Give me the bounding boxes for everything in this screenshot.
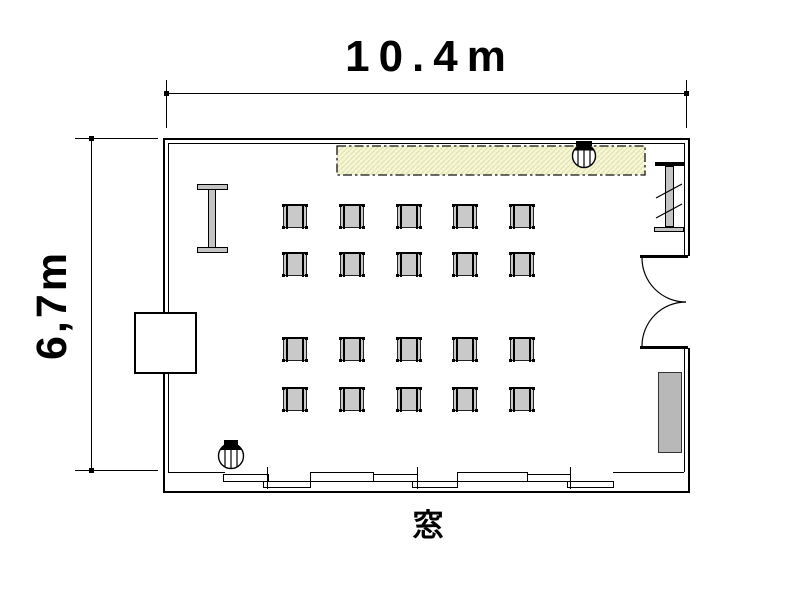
desk-corner-nub [362, 359, 365, 362]
desk [283, 387, 307, 411]
desk-corner-nub [532, 204, 535, 207]
desk [510, 387, 534, 411]
desk [510, 252, 534, 276]
extension-line-right [686, 80, 687, 128]
desk-corner-nub [305, 387, 308, 390]
window-mullion-tick [570, 467, 571, 489]
desk-corner-nub [362, 274, 365, 277]
desk-corner-nub [532, 274, 535, 277]
desk-corner-nub [419, 252, 422, 255]
desk-corner-nub [305, 226, 308, 229]
window-mullion-tick [417, 467, 418, 489]
double-door-symbol [642, 258, 686, 346]
extension-line-bottom [75, 470, 158, 471]
desk-corner-nub [282, 409, 285, 412]
window-pane [527, 474, 571, 482]
stand-bottom-flange [654, 227, 684, 232]
desk-corner-nub [419, 409, 422, 412]
wall-inner-bottom-left [168, 472, 225, 473]
desk [340, 204, 364, 228]
desk-corner-nub [509, 204, 512, 207]
desk [453, 337, 477, 361]
desk-corner-nub [475, 337, 478, 340]
desk-corner-nub [475, 252, 478, 255]
desk-corner-nub [305, 337, 308, 340]
desk-corner-nub [509, 409, 512, 412]
desk-corner-nub [339, 359, 342, 362]
floor-plan: 10.4m 6,7m [0, 0, 800, 600]
wall-inner-bottom-right [613, 472, 684, 473]
desk-corner-nub [305, 409, 308, 412]
desk-corner-nub [305, 274, 308, 277]
desk-corner-nub [396, 337, 399, 340]
window-pane [457, 472, 528, 482]
extension-line-top [75, 138, 158, 139]
desk [283, 204, 307, 228]
desk [283, 252, 307, 276]
desk [397, 337, 421, 361]
door-jamb-top [640, 255, 688, 258]
extension-line-left [166, 80, 167, 128]
desk [283, 337, 307, 361]
desk-corner-nub [475, 359, 478, 362]
desk-corner-nub [396, 409, 399, 412]
window-pane [412, 481, 458, 488]
desk-corner-nub [452, 409, 455, 412]
desk-corner-nub [452, 387, 455, 390]
desk-corner-nub [339, 252, 342, 255]
wall-inner-right-lower [684, 348, 685, 472]
wall-inner-left [168, 143, 169, 472]
dimension-width-line [167, 93, 687, 94]
desk-corner-nub [532, 226, 535, 229]
hatched-ceiling-zone [337, 146, 645, 175]
desk-corner-nub [419, 204, 422, 207]
desk-corner-nub [339, 226, 342, 229]
desk-corner-nub [475, 387, 478, 390]
desk-corner-nub [419, 337, 422, 340]
desk-corner-nub [282, 337, 285, 340]
wall-outer-right-lower [688, 348, 690, 493]
desk-corner-nub [475, 226, 478, 229]
desk-corner-nub [452, 252, 455, 255]
desk-corner-nub [532, 387, 535, 390]
desk-corner-nub [282, 359, 285, 362]
shelf-cabinet [658, 372, 682, 453]
desk-corner-nub [509, 252, 512, 255]
window-pane [567, 481, 614, 488]
desk-corner-nub [509, 337, 512, 340]
desk-corner-nub [339, 274, 342, 277]
desk-corner-nub [282, 274, 285, 277]
window-mullion-tick [267, 467, 268, 489]
desk [397, 252, 421, 276]
desk-corner-nub [419, 359, 422, 362]
dimension-width-label: 10.4m [330, 32, 530, 82]
desk-corner-nub [362, 252, 365, 255]
desk-corner-nub [452, 226, 455, 229]
window-pane [310, 472, 374, 482]
desk [453, 204, 477, 228]
desk-corner-nub [339, 387, 342, 390]
desk-corner-nub [419, 387, 422, 390]
desk [453, 252, 477, 276]
desk-corner-nub [339, 204, 342, 207]
dimension-end-marker [684, 91, 689, 96]
desk-corner-nub [475, 409, 478, 412]
desk-corner-nub [282, 252, 285, 255]
dimension-end-marker [89, 136, 94, 141]
desk-corner-nub [282, 226, 285, 229]
dimension-height-label: 6,7m [30, 220, 74, 390]
stand-bottom-flange [197, 247, 228, 253]
desk-corner-nub [475, 204, 478, 207]
dimension-end-marker [164, 91, 169, 96]
desk-corner-nub [452, 359, 455, 362]
desk-corner-nub [396, 274, 399, 277]
circular-fixture-symbol-top [573, 141, 596, 169]
desk-corner-nub [282, 387, 285, 390]
desk-corner-nub [396, 204, 399, 207]
desk-corner-nub [532, 359, 535, 362]
desk-corner-nub [396, 252, 399, 255]
desk-corner-nub [452, 204, 455, 207]
desk-corner-nub [509, 359, 512, 362]
desk-corner-nub [362, 409, 365, 412]
dimension-end-marker [89, 468, 94, 473]
wall-outer-bottom [163, 491, 690, 493]
desk-corner-nub [339, 337, 342, 340]
desk-corner-nub [452, 337, 455, 340]
desk [340, 337, 364, 361]
wall-outer-right-upper [688, 138, 690, 256]
desk [340, 252, 364, 276]
desk-corner-nub [362, 387, 365, 390]
dimension-height-line [91, 139, 92, 471]
window-pane [263, 481, 311, 488]
desk-corner-nub [509, 226, 512, 229]
desk-corner-nub [305, 252, 308, 255]
window-label: 窓 [397, 500, 459, 545]
desk-corner-nub [532, 252, 535, 255]
desk [397, 204, 421, 228]
desk-corner-nub [362, 226, 365, 229]
desk-corner-nub [475, 274, 478, 277]
desk [340, 387, 364, 411]
desk-corner-nub [362, 204, 365, 207]
desk-corner-nub [509, 274, 512, 277]
desk [510, 337, 534, 361]
desk-corner-nub [532, 337, 535, 340]
desk [510, 204, 534, 228]
desk-corner-nub [396, 387, 399, 390]
desk-corner-nub [452, 274, 455, 277]
desk-corner-nub [532, 409, 535, 412]
wall-inner-right-upper [684, 143, 685, 256]
desk-corner-nub [396, 359, 399, 362]
stand-stem [208, 189, 216, 249]
desk-corner-nub [282, 204, 285, 207]
desk-corner-nub [339, 409, 342, 412]
wall-alcove-box [134, 312, 197, 374]
desk [397, 387, 421, 411]
desk-corner-nub [305, 359, 308, 362]
desk [453, 387, 477, 411]
desk-corner-nub [362, 337, 365, 340]
wall-inner-top [168, 143, 685, 144]
desk-corner-nub [419, 226, 422, 229]
desk-corner-nub [419, 274, 422, 277]
wall-outer-top [163, 138, 690, 140]
stand-stem [665, 166, 674, 227]
desk-corner-nub [396, 226, 399, 229]
desk-corner-nub [305, 204, 308, 207]
desk-corner-nub [509, 387, 512, 390]
door-jamb-bottom [640, 346, 688, 349]
circular-fixture-symbol-bottom [219, 440, 244, 470]
